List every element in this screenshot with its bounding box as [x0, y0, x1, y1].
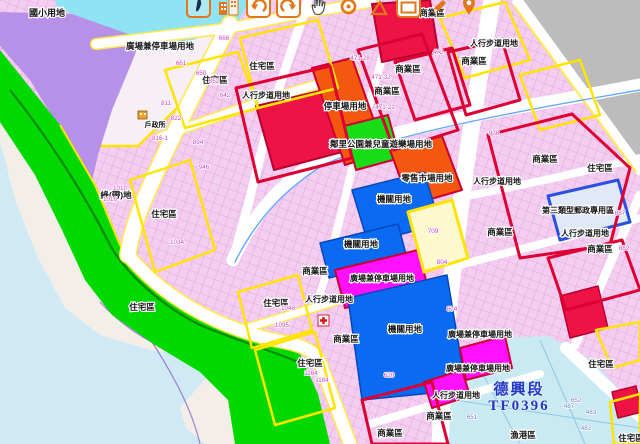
- location-pin-icon: [461, 0, 477, 16]
- overview-map-button[interactable]: [186, 0, 211, 18]
- parcel-number: 471-32: [371, 74, 391, 81]
- parcel-number: 1095: [275, 322, 290, 329]
- zone-label: 廣場兼停車場用地: [448, 329, 512, 339]
- section-stamp-name: 德興段: [493, 380, 544, 398]
- parcel-number: 1034: [170, 239, 185, 246]
- buildings-icon: [218, 0, 239, 16]
- zone-label: 商業區: [532, 154, 558, 164]
- zone-label: 商業區: [461, 56, 487, 66]
- rectangle-select-icon: [400, 1, 417, 14]
- parcel-number: 1164: [304, 370, 318, 377]
- zone-label: 戶政所: [145, 120, 166, 129]
- zone-label: 零售市場用地: [400, 173, 453, 183]
- zone-label: 停車場用地: [324, 101, 367, 111]
- parcel-number: 1010: [113, 185, 128, 192]
- zone-label: 住宅區: [297, 358, 323, 368]
- zone-label: 商業區: [302, 266, 328, 276]
- pan-hand-icon: [309, 0, 329, 16]
- zone-label: 商業區: [374, 86, 400, 96]
- measure-button[interactable]: [366, 0, 391, 18]
- map-toolbar: [186, 0, 481, 18]
- parcel-number: 471-21: [375, 104, 395, 111]
- next-view-button[interactable]: [276, 0, 301, 18]
- redo-arrow-icon: [280, 0, 297, 14]
- parcel-number: 894: [193, 139, 204, 146]
- zone-label: 機關用地: [388, 324, 423, 334]
- undo-arrow-icon: [250, 0, 267, 14]
- section-stamp-code: TF0396: [488, 398, 549, 414]
- map-canvas[interactable]: 國小用地廣場兼停車場用地住宅區住宅區人行步道用地停車場用地商業區人行步道用地商業…: [0, 0, 640, 444]
- zone-label: 人行步道用地: [561, 228, 609, 238]
- zone-label: 商業區: [587, 244, 613, 254]
- parcel-number: 666: [219, 35, 230, 42]
- parcel-number: 804: [437, 259, 448, 266]
- zone-label: 機關用地: [377, 194, 412, 204]
- parcel-number: 811: [161, 100, 172, 107]
- zone-label: 住宅區: [129, 302, 155, 312]
- zone-label: 人行步道用地: [432, 390, 480, 400]
- parcel-number: 1016: [103, 196, 118, 203]
- pan-tool-button[interactable]: [306, 0, 331, 18]
- zone-label: 廣場兼停車場用地: [125, 41, 195, 51]
- zoom-box-button[interactable]: [396, 0, 421, 18]
- zone-label: 國小用地: [29, 7, 65, 18]
- previous-view-button[interactable]: [246, 0, 271, 18]
- draw-marker-button[interactable]: [426, 0, 451, 18]
- zone-label: 人行步道用地: [473, 176, 521, 186]
- zone-label: 機關用地: [344, 239, 379, 249]
- zone-label: 人行步道用地: [470, 38, 518, 48]
- zone-label: 廣場兼停車場用地: [350, 273, 414, 283]
- parcel-number: 978: [489, 130, 500, 137]
- zone-label: 漁港區: [510, 430, 536, 440]
- parcel-number: 709: [428, 228, 439, 235]
- zone-label: 鄰里公園兼兒童遊樂場用地: [329, 139, 433, 149]
- parcel-number: 1184: [315, 377, 329, 384]
- parcel-number: 651: [467, 414, 478, 421]
- zone-label: 商業區: [395, 64, 421, 74]
- parcel-number: 483: [586, 409, 597, 416]
- zone-label: 第三類型郵政專用區: [542, 205, 614, 215]
- marker-pen-icon: [430, 0, 448, 16]
- parcel-number: 1048: [281, 305, 296, 312]
- zone-label: 廣場兼停車場用地: [446, 363, 510, 373]
- zone-label: 商業區: [333, 334, 359, 344]
- zone-label: 商業區: [426, 411, 452, 421]
- parcel-number: 472: [433, 49, 444, 56]
- parcel-number: 816-1: [152, 135, 169, 142]
- parcel-number: 661: [176, 60, 187, 67]
- zone-label: 住宅區: [618, 433, 640, 443]
- map-application-window: 國小用地廣場兼停車場用地住宅區住宅區人行步道用地停車場用地商業區人行步道用地商業…: [0, 0, 640, 444]
- parcel-number: 642: [220, 92, 231, 99]
- parcel-number: 650: [196, 70, 207, 77]
- zone-label: 住宅區: [151, 209, 177, 219]
- parcel-number: 874: [447, 306, 458, 313]
- parcel-number: 946: [199, 164, 210, 171]
- parcel-number: 620: [384, 372, 395, 379]
- zone-label: 商業區: [377, 428, 403, 438]
- parcel-number: 882: [619, 245, 630, 252]
- zone-label: 住宅區: [249, 61, 275, 71]
- parcel-number: 471-28: [350, 55, 370, 62]
- parcel-number: 822: [171, 115, 182, 122]
- taiwan-map-icon: [190, 0, 207, 14]
- zone-label: 人行步道用地: [242, 90, 290, 100]
- parcel-number: 482: [581, 425, 592, 432]
- hospital-cross-icon: [318, 315, 329, 326]
- buildings-layer-button[interactable]: [216, 0, 241, 18]
- parcel-number: 852: [209, 78, 220, 85]
- parcel-number: 487: [564, 403, 575, 410]
- parcel-number: 887: [615, 210, 626, 217]
- government-office-icon: [138, 111, 147, 119]
- zone-label: 住宅區: [587, 163, 613, 173]
- locate-point-button[interactable]: [336, 0, 361, 18]
- triangle-ruler-icon: [370, 0, 388, 16]
- location-pin-button[interactable]: [456, 0, 481, 18]
- zone-label: 人行步道用地: [305, 294, 353, 304]
- zone-label: 住宅區: [588, 359, 614, 369]
- target-circle-icon: [339, 0, 358, 16]
- zone-label: 商業區: [487, 227, 513, 237]
- commercial-fill-zone-corner: [612, 386, 640, 418]
